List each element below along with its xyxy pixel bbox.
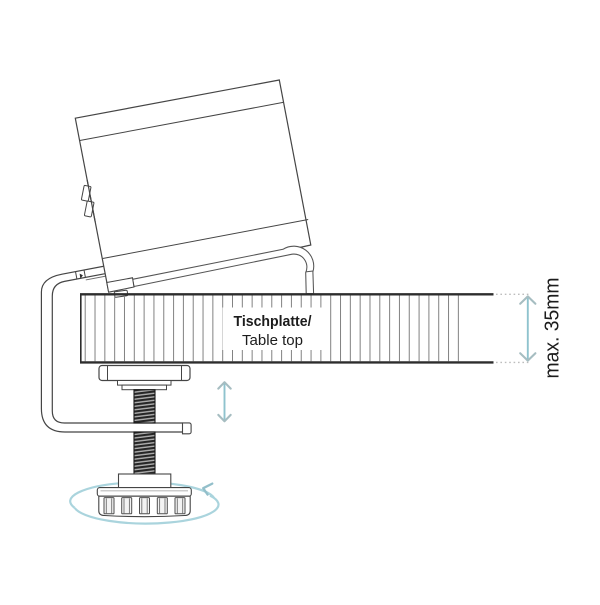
- svg-text:max. 35mm: max. 35mm: [542, 278, 564, 379]
- svg-text:Tischplatte/: Tischplatte/: [234, 313, 313, 330]
- svg-text:Table top: Table top: [242, 332, 303, 349]
